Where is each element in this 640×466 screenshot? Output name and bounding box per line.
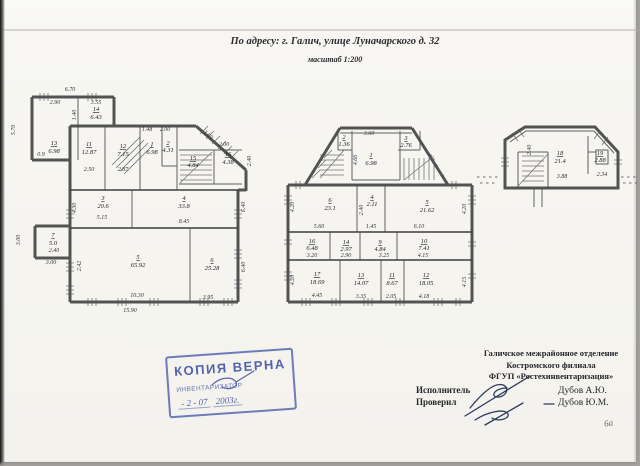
dim-label: 4.20 bbox=[289, 202, 296, 213]
dim-label: 8.45 bbox=[179, 218, 190, 225]
floor1-main-walls bbox=[70, 190, 238, 228]
stamp-date: - 2 - 07 2003г. bbox=[178, 391, 294, 409]
dim-label: 4.15 bbox=[418, 252, 429, 259]
room-area: 6.43 bbox=[90, 114, 102, 121]
room-area: 33.8 bbox=[177, 203, 190, 210]
checked-label: Проверил bbox=[416, 397, 456, 407]
dim-label: 3.35 bbox=[355, 294, 367, 300]
room-number: 7 bbox=[51, 232, 55, 239]
dim-label: 3.55 bbox=[90, 100, 102, 106]
dim-label: 3.88 bbox=[556, 174, 568, 180]
room-number: 14 bbox=[343, 239, 350, 246]
executor-name: Дубов А.Ю. bbox=[558, 386, 607, 396]
room-number: 3 bbox=[100, 195, 105, 202]
dim-label: 4.20 bbox=[289, 275, 296, 286]
room-area: 65.92 bbox=[131, 262, 146, 269]
room-number: 2 bbox=[342, 134, 346, 141]
room-area: 4.38 bbox=[222, 159, 234, 166]
dim-label: 2.87 bbox=[118, 167, 130, 173]
room-number: 1 bbox=[369, 152, 372, 159]
dim-label: 2.40 bbox=[358, 205, 365, 216]
dim-label: 4.45 bbox=[312, 292, 323, 299]
dim-label: 10.30 bbox=[130, 293, 144, 299]
dim-label: 3.00 bbox=[16, 235, 22, 247]
attic-partitions bbox=[510, 131, 614, 207]
dim-label: 1.45 bbox=[366, 223, 377, 230]
dim-label: 2.00 bbox=[219, 142, 230, 148]
room-area: 18.05 bbox=[419, 280, 434, 287]
room-number: 15 bbox=[190, 155, 197, 162]
dim-label: 2.50 bbox=[84, 167, 95, 173]
room-number: 5 bbox=[136, 254, 140, 261]
room-area: 25.28 bbox=[205, 265, 220, 272]
room-area: 21.4 bbox=[554, 158, 566, 165]
room-number: 14 bbox=[93, 106, 100, 113]
floor1-plan: 13 6.98 14 6.43 11 12.87 12 7.15 1 6.98 … bbox=[11, 87, 253, 314]
floor2-partitions bbox=[330, 131, 420, 302]
room-number: 6 bbox=[328, 197, 332, 204]
room-area: 21.62 bbox=[420, 207, 435, 214]
room-area: 6.98 bbox=[365, 160, 377, 167]
room-area: 6.98 bbox=[48, 148, 60, 155]
approval-signatures bbox=[455, 368, 565, 430]
room-number: 16 bbox=[225, 151, 232, 158]
stamp-title: КОПИЯ ВЕРНА bbox=[168, 356, 293, 380]
room-area: 7.15 bbox=[117, 151, 129, 158]
room-number: 13 bbox=[51, 140, 58, 147]
dim-label: 2.05 bbox=[386, 294, 397, 300]
room-number: 1 bbox=[150, 141, 153, 148]
dim-label: 3.00 bbox=[45, 260, 57, 266]
room-number: 4 bbox=[370, 194, 374, 201]
dim-label: 15.90 bbox=[123, 308, 137, 314]
attic-plan: 18 21.4 19 2.88 3.88 2.34 2.40 bbox=[477, 127, 639, 207]
room-area: 2.76 bbox=[400, 142, 412, 149]
room-number: 18 bbox=[557, 150, 564, 157]
room-area: 6.98 bbox=[146, 149, 158, 156]
room-number: 6 bbox=[210, 257, 214, 264]
room-number: 11 bbox=[86, 141, 92, 148]
dim-label: 2.90 bbox=[50, 100, 61, 106]
room-number: 11 bbox=[389, 272, 395, 279]
attic-stair-hatch bbox=[518, 154, 548, 186]
dim-label: 3.20 bbox=[306, 253, 318, 259]
room-number: 9 bbox=[378, 239, 382, 246]
room-area: 20.6 bbox=[97, 203, 109, 210]
floor2-stair-hatch bbox=[312, 148, 444, 180]
dim-label: 4.18 bbox=[419, 293, 430, 300]
dim-label: 4.30 bbox=[71, 203, 78, 214]
dim-label: 4.15 bbox=[461, 277, 468, 288]
room-area: 4.31 bbox=[162, 147, 173, 154]
room-area: 14.07 bbox=[354, 280, 369, 287]
dim-label: 2.40 bbox=[526, 145, 533, 156]
dim-label: 6.40 bbox=[240, 202, 247, 213]
room-number: 12 bbox=[120, 143, 127, 150]
dim-label: 2.40 bbox=[49, 247, 60, 254]
room-area: 12.87 bbox=[82, 149, 97, 156]
room-area: 23.1 bbox=[324, 205, 335, 212]
room-area: 4.84 bbox=[374, 246, 386, 253]
room-area: 4.84 bbox=[187, 162, 199, 169]
checker-signature bbox=[475, 403, 523, 425]
dim-label: 2.40 bbox=[246, 156, 253, 167]
dim-label: 6.70 bbox=[65, 87, 76, 93]
room-area: 5.0 bbox=[49, 240, 58, 247]
floor1-stair-hatch bbox=[112, 126, 238, 183]
dim-label: 3.95 bbox=[202, 295, 214, 301]
room-number: 2 bbox=[166, 140, 170, 147]
dim-label: 5.15 bbox=[97, 215, 108, 221]
scale-label: масштаб 1:200 bbox=[160, 55, 510, 64]
dim-label: 2.90 bbox=[341, 253, 352, 259]
dim-label: 2.42 bbox=[76, 261, 83, 272]
dim-label: 2.00 bbox=[160, 127, 171, 133]
dim-label: 5.60 bbox=[314, 224, 325, 230]
dim-label: 4.66 bbox=[352, 155, 359, 166]
room-number: 13 bbox=[358, 272, 365, 279]
room-number: 4 bbox=[182, 195, 186, 202]
dim-label: 3.25 bbox=[378, 253, 390, 259]
room-area: 1.36 bbox=[338, 141, 350, 148]
room-area: 8.67 bbox=[386, 280, 398, 287]
dim-label: 6.10 bbox=[414, 224, 425, 230]
room-number: 17 bbox=[314, 271, 321, 278]
dim-label: 2.34 bbox=[597, 171, 608, 178]
copy-stamp: КОПИЯ ВЕРНА ИНВЕНТАРИЗАТОР - 2 - 07 2003… bbox=[165, 348, 297, 419]
room-area: 2.88 bbox=[594, 157, 606, 164]
room-area: 7.41 bbox=[418, 245, 429, 252]
org-name-line1: Галичское межрайонное отделение bbox=[462, 348, 640, 360]
room-area: 18.69 bbox=[310, 279, 325, 286]
stamp-year-value: 2003г. bbox=[212, 394, 242, 407]
dim-label: 0.9 bbox=[37, 152, 45, 158]
floor2-plan: 2 1.36 1 6.98 3 2.76 6 23.1 4 2.11 5 21.… bbox=[284, 128, 476, 306]
dim-label: 1.40 bbox=[71, 110, 78, 121]
page-number-mark: 6а bbox=[603, 417, 613, 428]
document-title: По адресу: г. Галич, улице Луначарского … bbox=[160, 36, 510, 47]
room-number: 10 bbox=[421, 238, 428, 245]
executor-signature bbox=[470, 384, 507, 408]
dim-label: 3.60 bbox=[363, 131, 375, 137]
room-number: 16 bbox=[309, 238, 316, 245]
room-number: 19 bbox=[597, 150, 604, 157]
dim-label: 1.48 bbox=[142, 126, 153, 133]
checker-name: Дубов Ю.М. bbox=[558, 398, 609, 408]
dim-label: 5.70 bbox=[11, 125, 17, 136]
room-number: 5 bbox=[425, 199, 429, 206]
room-number: 3 bbox=[403, 135, 408, 142]
dim-label: 4.20 bbox=[461, 204, 468, 215]
room-number: 12 bbox=[423, 272, 430, 279]
room-area: 2.97 bbox=[340, 246, 352, 253]
room-area: 2.11 bbox=[367, 201, 378, 208]
signature-slash bbox=[465, 376, 530, 416]
stamp-role-label: ИНВЕНТАРИЗАТОР bbox=[176, 382, 243, 394]
dim-label: 6.40 bbox=[240, 262, 247, 273]
stamp-date-value: - 2 - 07 bbox=[178, 396, 211, 409]
room-area: 6.48 bbox=[306, 245, 318, 252]
